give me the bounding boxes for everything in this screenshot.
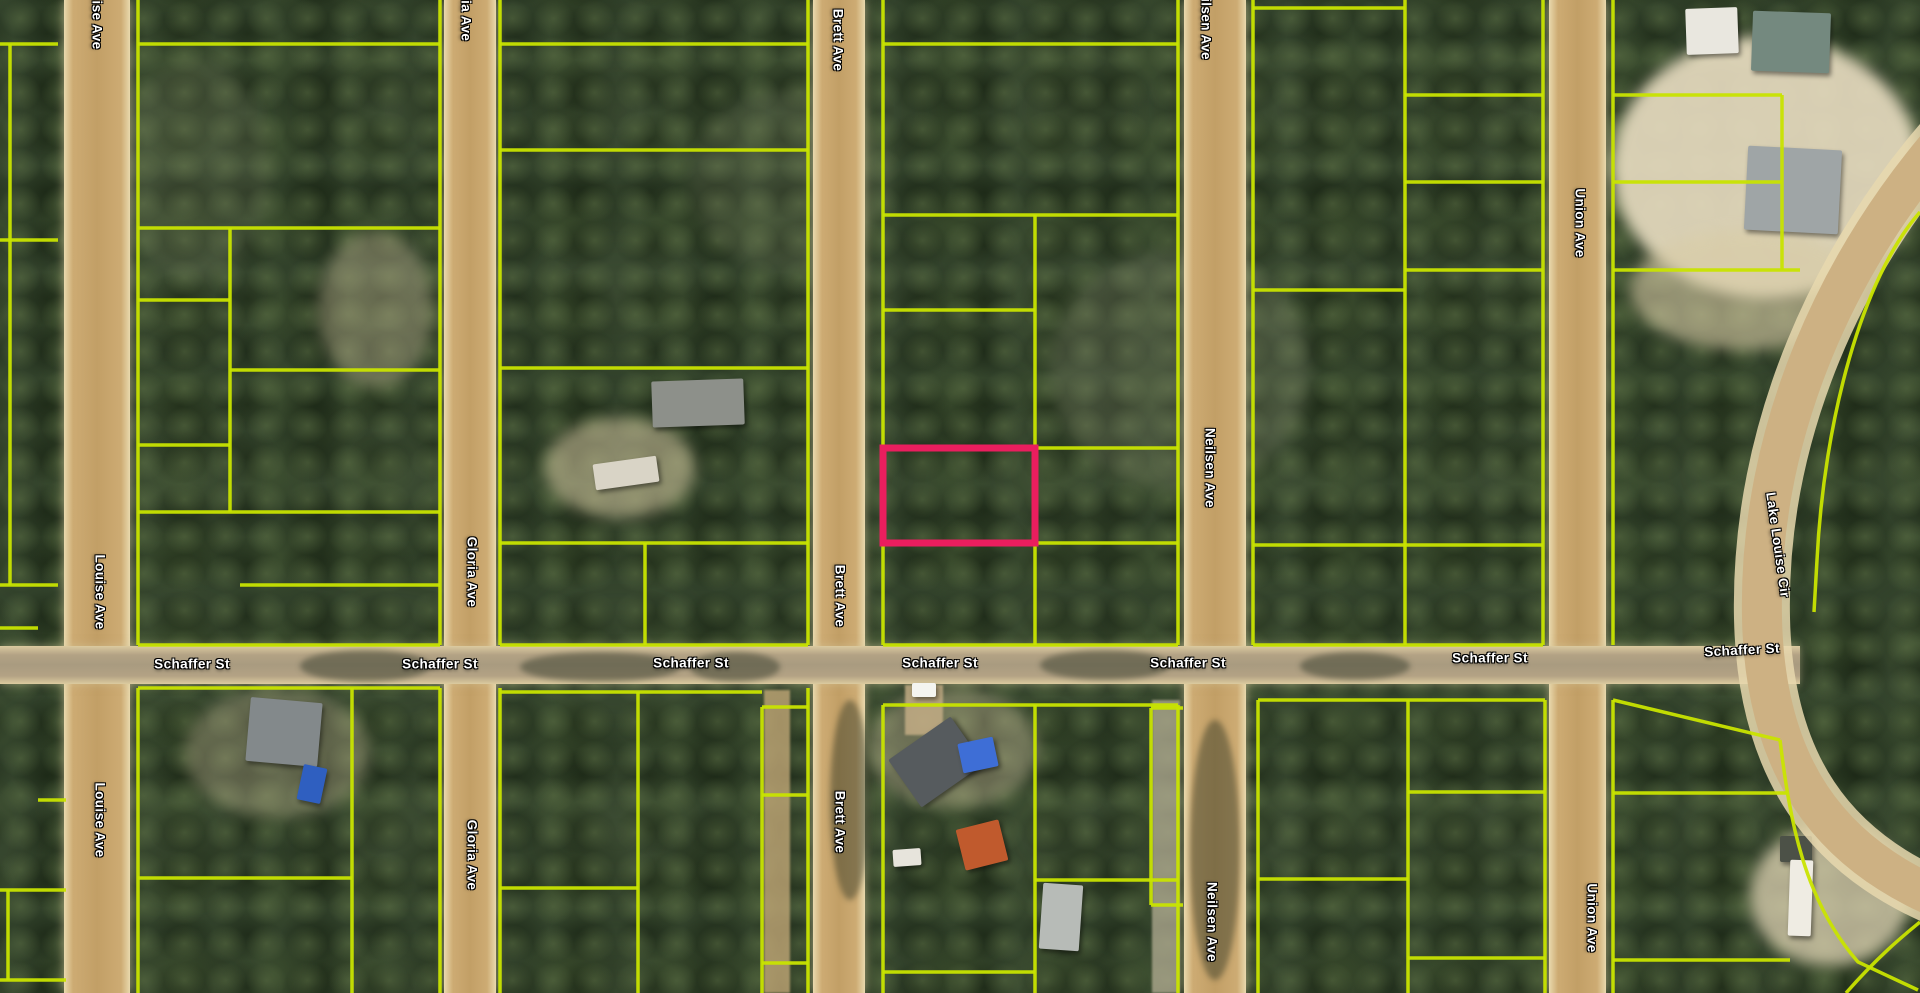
street-label: Neilsen Ave: [1199, 0, 1214, 60]
street-label: Louise Ave: [90, 0, 105, 50]
street-label: Schaffer St: [1150, 656, 1226, 671]
street-label: Brett Ave: [831, 9, 846, 72]
parcel-curve: [1846, 922, 1920, 993]
street-label: Neilsen Ave: [1203, 428, 1218, 508]
street-label: Brett Ave: [833, 565, 848, 628]
street-label: Schaffer St: [402, 657, 478, 672]
street-label: Louise Ave: [93, 782, 108, 857]
highlighted-parcel: [883, 448, 1035, 543]
street-label: Neilsen Ave: [1205, 882, 1220, 962]
street-label: Gloria Ave: [465, 537, 480, 608]
street-label: Brett Ave: [833, 791, 848, 854]
street-label: Schaffer St: [1452, 651, 1528, 666]
parcel-overlay-svg: [0, 0, 1920, 993]
street-label: Schaffer St: [902, 656, 978, 671]
street-label: Schaffer St: [154, 657, 230, 672]
street-label: Schaffer St: [653, 656, 729, 671]
street-label: Louise Ave: [93, 554, 108, 629]
street-label: Gloria Ave: [465, 820, 480, 891]
street-label: Union Ave: [1585, 883, 1600, 952]
street-label: Gloria Ave: [459, 0, 474, 41]
street-label: Union Ave: [1573, 188, 1588, 257]
aerial-parcel-map[interactable]: Schaffer StSchaffer StSchaffer StSchaffe…: [0, 0, 1920, 993]
